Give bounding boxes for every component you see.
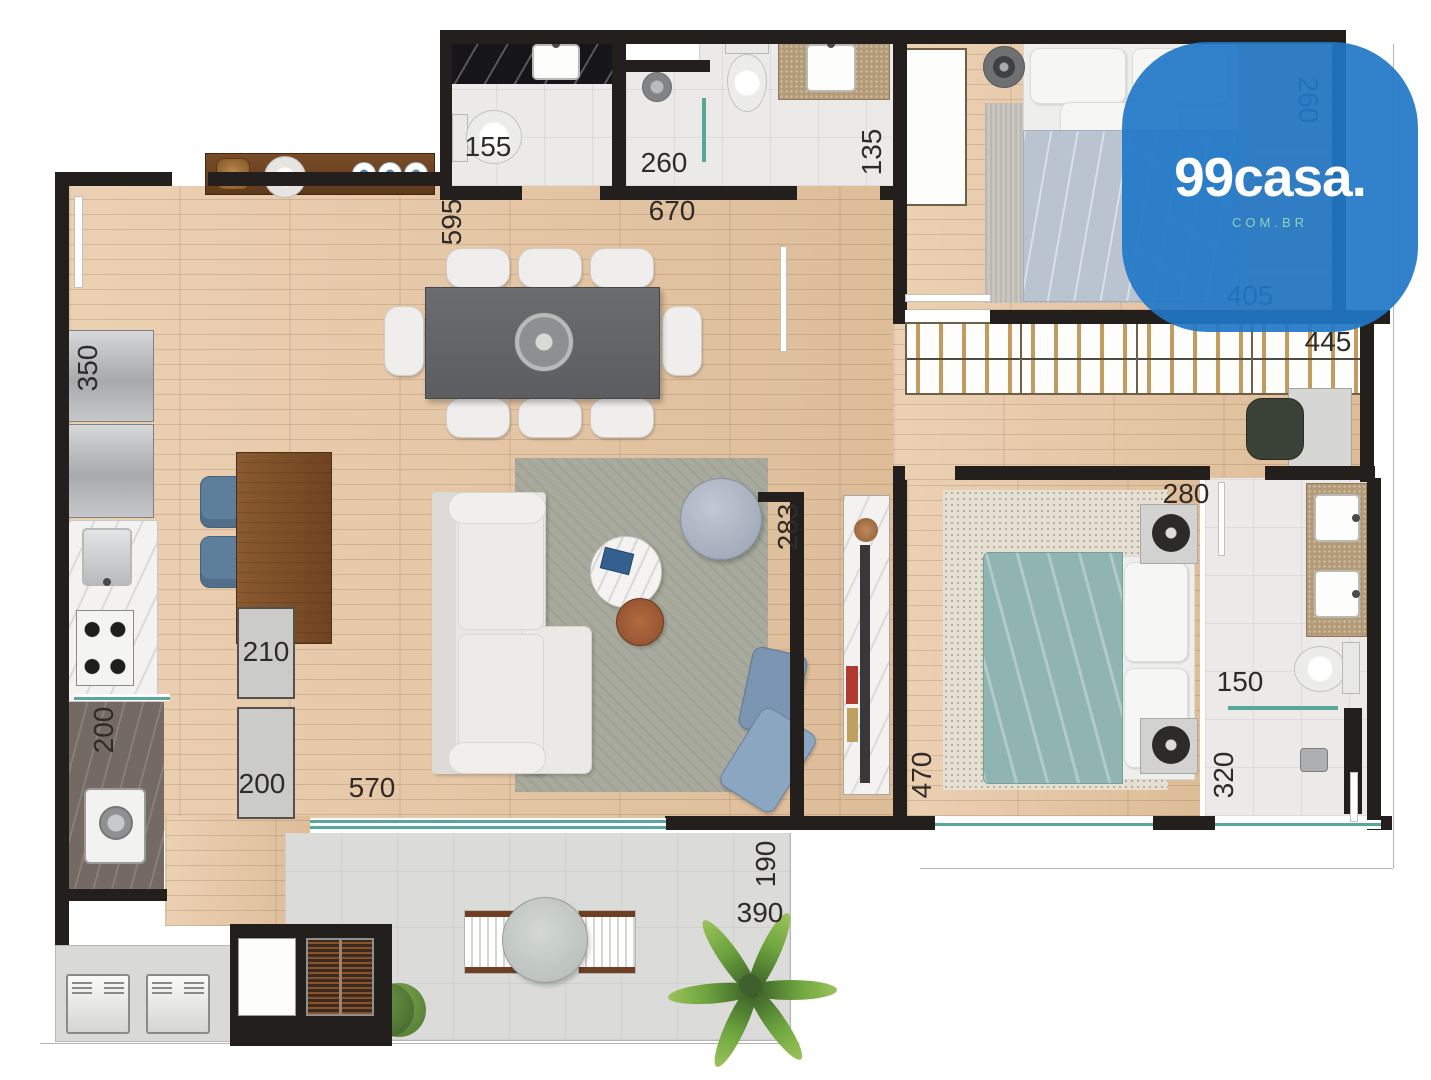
sofa-armrest — [448, 492, 546, 524]
bathroom3-shower-door — [1350, 772, 1358, 822]
kitchen-cabinet-210 — [237, 607, 295, 699]
wall — [55, 889, 167, 901]
bathroom2-shower-glass — [702, 98, 706, 162]
balcony-table — [502, 897, 588, 983]
ac-vents — [104, 982, 124, 994]
ac-unit — [66, 974, 130, 1034]
wall — [600, 186, 797, 200]
washing-machine-door — [99, 806, 133, 840]
wall — [440, 44, 452, 186]
bathroom2-shower-head — [642, 72, 672, 102]
bathroom1-counter — [450, 38, 612, 84]
oven-appliance — [68, 424, 154, 518]
wall — [55, 172, 172, 186]
wall — [1380, 816, 1392, 830]
wall — [955, 466, 1210, 480]
wall — [1265, 466, 1375, 480]
wall — [893, 44, 907, 310]
bathroom3-toilet-tank — [1342, 642, 1360, 694]
dining-chair — [590, 398, 654, 438]
dining-chair — [446, 248, 510, 288]
bedroom1-wardrobe — [905, 48, 967, 206]
wall — [1360, 322, 1374, 482]
kitchen-cabinet-200 — [237, 707, 295, 819]
bathroom3-door — [1218, 482, 1225, 556]
chair-frame-bar — [579, 967, 635, 973]
wall — [893, 480, 907, 816]
dining-chair — [662, 306, 702, 376]
wall — [55, 172, 69, 945]
bathroom3-faucet — [1352, 590, 1360, 598]
dining-chair — [518, 248, 582, 288]
bedroom1-lamp — [993, 56, 1015, 78]
closet-section — [1022, 324, 1137, 393]
bathroom1-sink — [532, 44, 580, 80]
wall — [1367, 478, 1381, 830]
kitchen-faucet — [103, 578, 111, 586]
entry-door — [74, 196, 83, 288]
walkin-closet-row — [905, 322, 1370, 395]
refrigerator — [68, 330, 154, 422]
dining-chair — [518, 398, 582, 438]
desk-chair — [1246, 398, 1304, 460]
table-centerpiece-bowl — [514, 312, 574, 372]
bed2-pillow — [1124, 562, 1188, 662]
palm-center — [739, 974, 761, 996]
bed1-pillow — [1030, 48, 1126, 104]
wall — [880, 186, 893, 200]
bedroom1-door-threshold — [905, 294, 991, 302]
wall — [1153, 816, 1215, 830]
bathroom3-shower-glass — [1228, 706, 1338, 710]
wall — [893, 466, 905, 480]
wall — [612, 44, 626, 186]
ac-vents — [184, 982, 204, 994]
bathroom1-toilet-bowl — [466, 110, 522, 164]
ac-vents — [72, 982, 92, 994]
logo-brand-text: 99casa. — [1174, 145, 1366, 209]
bedroom2-lamp — [1152, 514, 1190, 552]
service-white-box — [238, 938, 296, 1016]
bathroom2-shower-partition — [622, 60, 710, 72]
bathroom3-faucet — [1352, 514, 1360, 522]
balcony-sliding-door — [310, 818, 666, 830]
console-decor — [854, 518, 878, 542]
round-side-table — [616, 598, 664, 646]
wall — [208, 172, 452, 186]
cooktop — [76, 610, 134, 686]
closet-section — [1253, 324, 1368, 393]
wall — [440, 186, 522, 200]
wall — [893, 310, 905, 324]
bed2-duvet — [983, 552, 1123, 784]
wall — [790, 497, 804, 830]
closet-section — [907, 324, 1022, 393]
palm-plant — [695, 928, 815, 1052]
logo-badge: 99casa. COM.BR — [1122, 42, 1418, 332]
sofa-backrest — [432, 492, 456, 774]
wall — [665, 816, 935, 830]
closet-section — [1138, 324, 1253, 393]
ac-vents — [152, 982, 172, 994]
bbq-grill — [306, 938, 374, 1016]
ac-unit — [146, 974, 210, 1034]
bathroom3-toilet-bowl — [1294, 646, 1346, 692]
dining-chair — [590, 248, 654, 288]
outer-bottom-line — [40, 1043, 800, 1044]
dining-chair — [384, 306, 424, 376]
console-books — [847, 708, 858, 742]
right-ledge-line — [920, 868, 1393, 869]
floor-plan-canvas: 1552601356705952604054453502832802102002… — [0, 0, 1431, 1080]
logo-domain-text: COM.BR — [1232, 215, 1308, 230]
dining-chair — [446, 398, 510, 438]
console-books — [846, 666, 858, 704]
chair-frame-bar — [579, 911, 635, 917]
hall-door — [780, 246, 787, 352]
bedroom2-lamp — [1152, 726, 1190, 764]
wall — [758, 492, 804, 502]
bedroom2-window — [935, 820, 1153, 829]
kitchen-pass-shelf — [74, 694, 170, 701]
sofa-armrest — [448, 742, 546, 774]
bathroom3-shower-head — [1300, 748, 1328, 772]
round-pouf — [680, 478, 762, 560]
bathroom2-sink — [806, 44, 856, 92]
tv-screen — [860, 545, 870, 783]
